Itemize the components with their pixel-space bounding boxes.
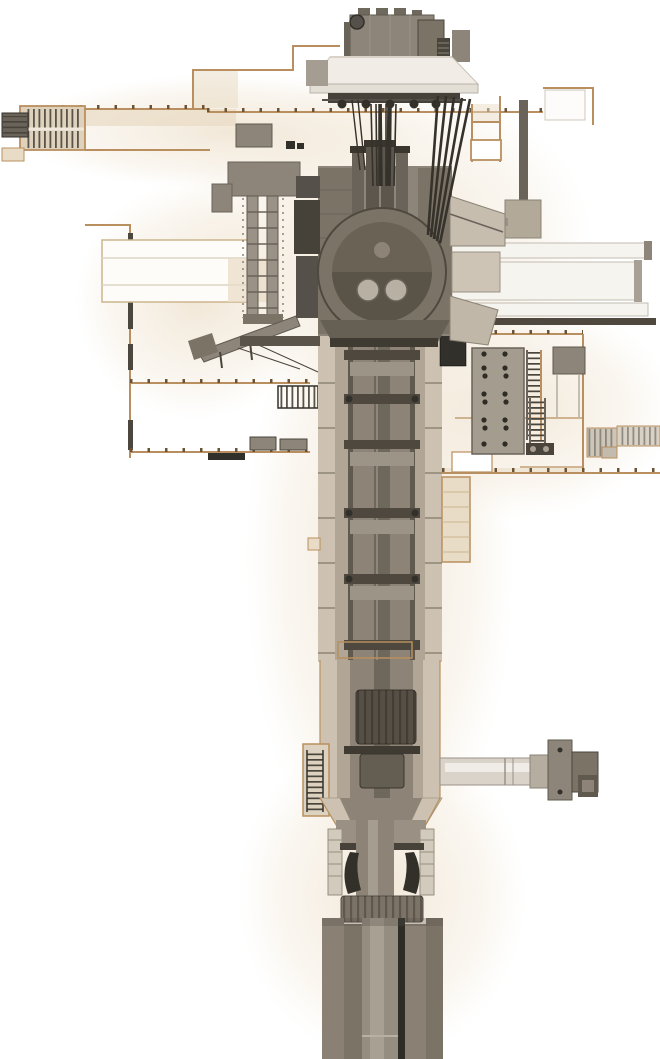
hoist-house <box>344 8 470 64</box>
render-stage: Sectional 3D render of a deep vertical s… <box>0 0 660 1059</box>
crown-sheave <box>350 15 364 29</box>
stairwell-upper-left <box>20 106 85 150</box>
left-attachment <box>294 200 320 254</box>
left-attachment <box>296 256 318 318</box>
bottom-columns <box>322 918 443 1059</box>
bottom-assembly <box>322 820 443 1059</box>
far-left-landing <box>2 148 24 161</box>
small-box <box>286 141 295 149</box>
right-step-block <box>442 477 470 562</box>
floor-opening <box>452 452 492 472</box>
rotary-drum <box>318 208 446 336</box>
annex-fill <box>194 71 238 108</box>
canopy-trolleys <box>328 93 460 103</box>
arm-drive-unit <box>548 740 598 800</box>
small-box <box>297 143 304 149</box>
mid-left-ladder <box>278 386 318 408</box>
head-floor-band <box>240 336 320 346</box>
post-plate <box>505 200 541 238</box>
render-canvas: Sectional 3D render of a deep vertical s… <box>0 0 660 1059</box>
left-step <box>308 538 320 550</box>
small-drum <box>360 754 404 788</box>
shaft-lower <box>303 660 442 828</box>
left-attachment <box>296 176 320 198</box>
upper-equipment-box <box>236 124 272 147</box>
drum-crossband <box>344 746 420 754</box>
shaft-casing <box>308 332 442 662</box>
electrical-panel <box>472 348 524 454</box>
